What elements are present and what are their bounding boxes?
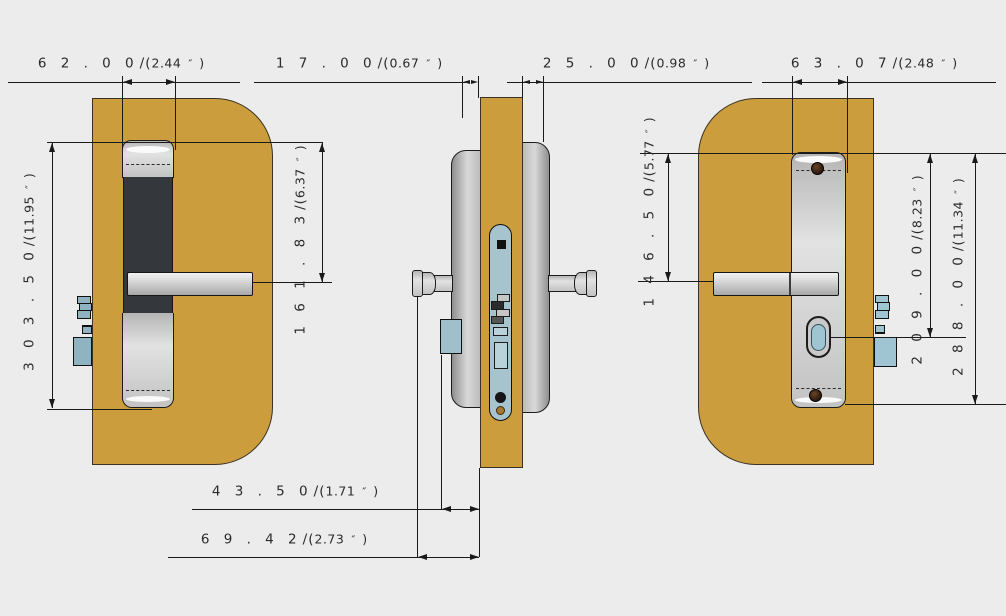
ext-line [47,409,152,410]
dim-line-288 [975,153,976,404]
arrow [470,506,479,512]
arrow [972,395,978,404]
handle-endplate-right-side [586,270,597,297]
lever-handle-back [713,272,839,296]
thumbturn-side-view [440,319,462,354]
front-plate-dashed-line [126,390,170,391]
ext-line [478,76,479,98]
arrow [793,79,802,85]
front-plate-highlight [126,396,170,402]
latch-guard-plate [493,327,508,336]
back-lock-body-side [522,142,550,413]
faceplate-screw-bottom [495,392,506,403]
arrow [418,554,427,560]
deadbolt-front-view [73,337,92,366]
arrow [166,79,175,85]
ext-line [175,76,176,150]
arrow [536,80,543,84]
arrow [470,554,479,560]
dim-line-43 [192,509,479,510]
arrow [665,154,671,163]
latch-bolt-front-view [77,310,91,319]
front-plate-highlight [126,146,170,153]
handle-shaft-left-side [434,275,453,292]
arrow [442,506,451,512]
dim-line-17 [254,82,466,83]
key-cylinder [811,324,826,351]
ext-line [543,76,544,142]
arrow [319,273,325,282]
latch-bolt-back-view [875,310,889,319]
dim-line-209 [930,153,931,337]
ext-line [845,404,1006,405]
aux-bolt-front-view [82,325,92,334]
arrow [665,272,671,281]
ext-line [479,468,480,557]
front-plate-bottom [122,313,174,408]
arrow [838,79,847,85]
handle-seam [789,273,791,295]
handle-endplate-left-side [412,270,423,297]
ext-line [47,142,322,143]
dim-line-146 [668,153,669,281]
faceplate-screw-top [497,240,506,249]
arrow [49,143,55,152]
back-plate-screw-top [811,162,824,175]
leader-cylinder [831,337,966,338]
faceplate-bronze-pin [496,406,505,415]
arrow [49,399,55,408]
front-lock-body-side [451,150,481,408]
latch-mechanism [491,316,504,324]
ext-line [847,76,848,173]
lock-dimension-drawing: 6 2 . 0 0/(2.44″) 1 7 . 0 0/(0.67″) 2 5 … [0,0,1006,616]
ext-line [417,297,418,557]
aux-bolt-back-view [875,325,885,334]
arrow [319,143,325,152]
dim-line-161 [322,142,323,282]
deadbolt-cutout [494,342,508,369]
arrow [123,79,132,85]
dim-line-303 [52,142,53,408]
arrow [471,80,478,84]
arrow [927,328,933,337]
arrow [927,154,933,163]
arrow [972,154,978,163]
ext-line [792,76,793,155]
arrow [463,80,470,84]
lever-handle-front [127,272,253,296]
front-plate-dashed-line [126,164,170,165]
ext-line [441,355,442,509]
handle-shaft-right-side [548,275,576,292]
dim-line-69 [168,557,479,558]
ext-line [122,76,123,150]
arrow [523,80,530,84]
deadbolt-back-view [874,337,897,367]
ext-line [640,153,1006,154]
back-plate-screw-bottom [809,389,822,402]
handle-cap-left-side [422,272,436,295]
